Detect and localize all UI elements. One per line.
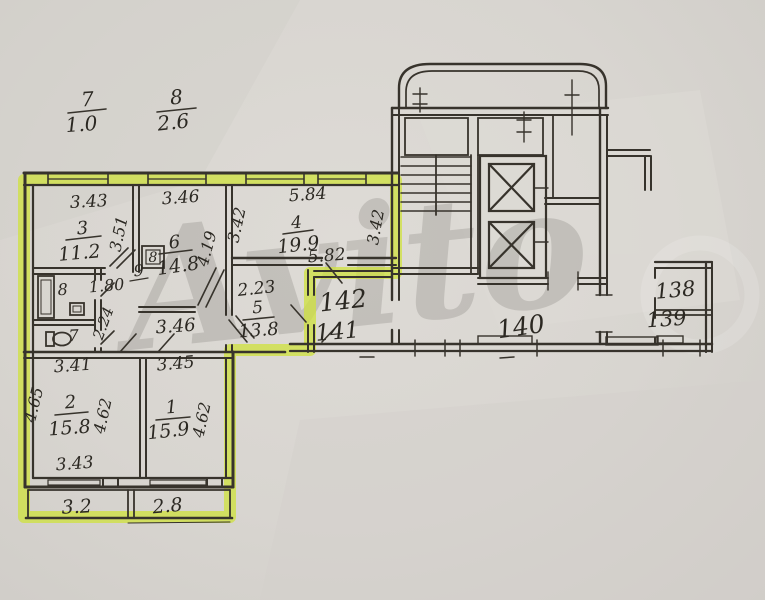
floor-plan-photo: Avito: [0, 0, 765, 600]
flat-number-138: 138: [654, 276, 696, 303]
room4-number: 4: [289, 213, 303, 234]
room2-number: 2: [63, 392, 77, 414]
flat-number-139: 139: [646, 306, 688, 333]
room3-dim-top: 3.43: [69, 191, 108, 213]
hall-number-142: 142: [318, 284, 368, 318]
room1-dim-right: 4.62: [188, 400, 214, 440]
vent-box-label: 8: [149, 250, 158, 266]
room6-dim-top: 3.46: [161, 187, 200, 210]
room6-number: 6: [168, 232, 181, 254]
room1-area: 15.9: [146, 418, 190, 444]
corridor-dim: 3.46: [155, 315, 196, 339]
balcony-left-area: 3.2: [61, 495, 92, 519]
room2-area: 15.8: [48, 416, 92, 441]
room5-area: 13.8: [238, 319, 279, 343]
room1-number: 1: [165, 397, 178, 419]
sink-icon: [70, 303, 84, 315]
room3-area: 11.2: [57, 240, 101, 266]
bath-number: 8: [57, 280, 68, 300]
room4-dim-bottom: 5.82: [307, 245, 346, 268]
bathtub-icon: [38, 276, 54, 318]
hall9-dim: 1.80: [88, 275, 125, 297]
balcony-right-area: 2.8: [150, 494, 183, 519]
room2-dim-right: 4.62: [89, 396, 115, 436]
room3-number: 3: [76, 218, 89, 240]
ref7-num: 7: [80, 87, 95, 112]
room1-dim-top: 3.45: [156, 352, 195, 375]
wc-number: 7: [68, 326, 80, 346]
room4-dim-top: 5.84: [288, 184, 327, 207]
ref8-num: 8: [169, 85, 184, 110]
ref7-val: 1.0: [65, 111, 99, 137]
hall-number-141: 141: [314, 317, 360, 347]
room2-dim-top: 3.41: [53, 355, 92, 378]
ref8-val: 2.6: [155, 108, 190, 135]
hall9-dim-side: 2.24: [89, 305, 118, 343]
hall9-number: 9: [133, 261, 144, 281]
room2-dim-bottom: 3.43: [55, 453, 94, 476]
room5-number: 5: [252, 298, 264, 319]
floor-plan-drawing: Avito: [0, 0, 765, 600]
